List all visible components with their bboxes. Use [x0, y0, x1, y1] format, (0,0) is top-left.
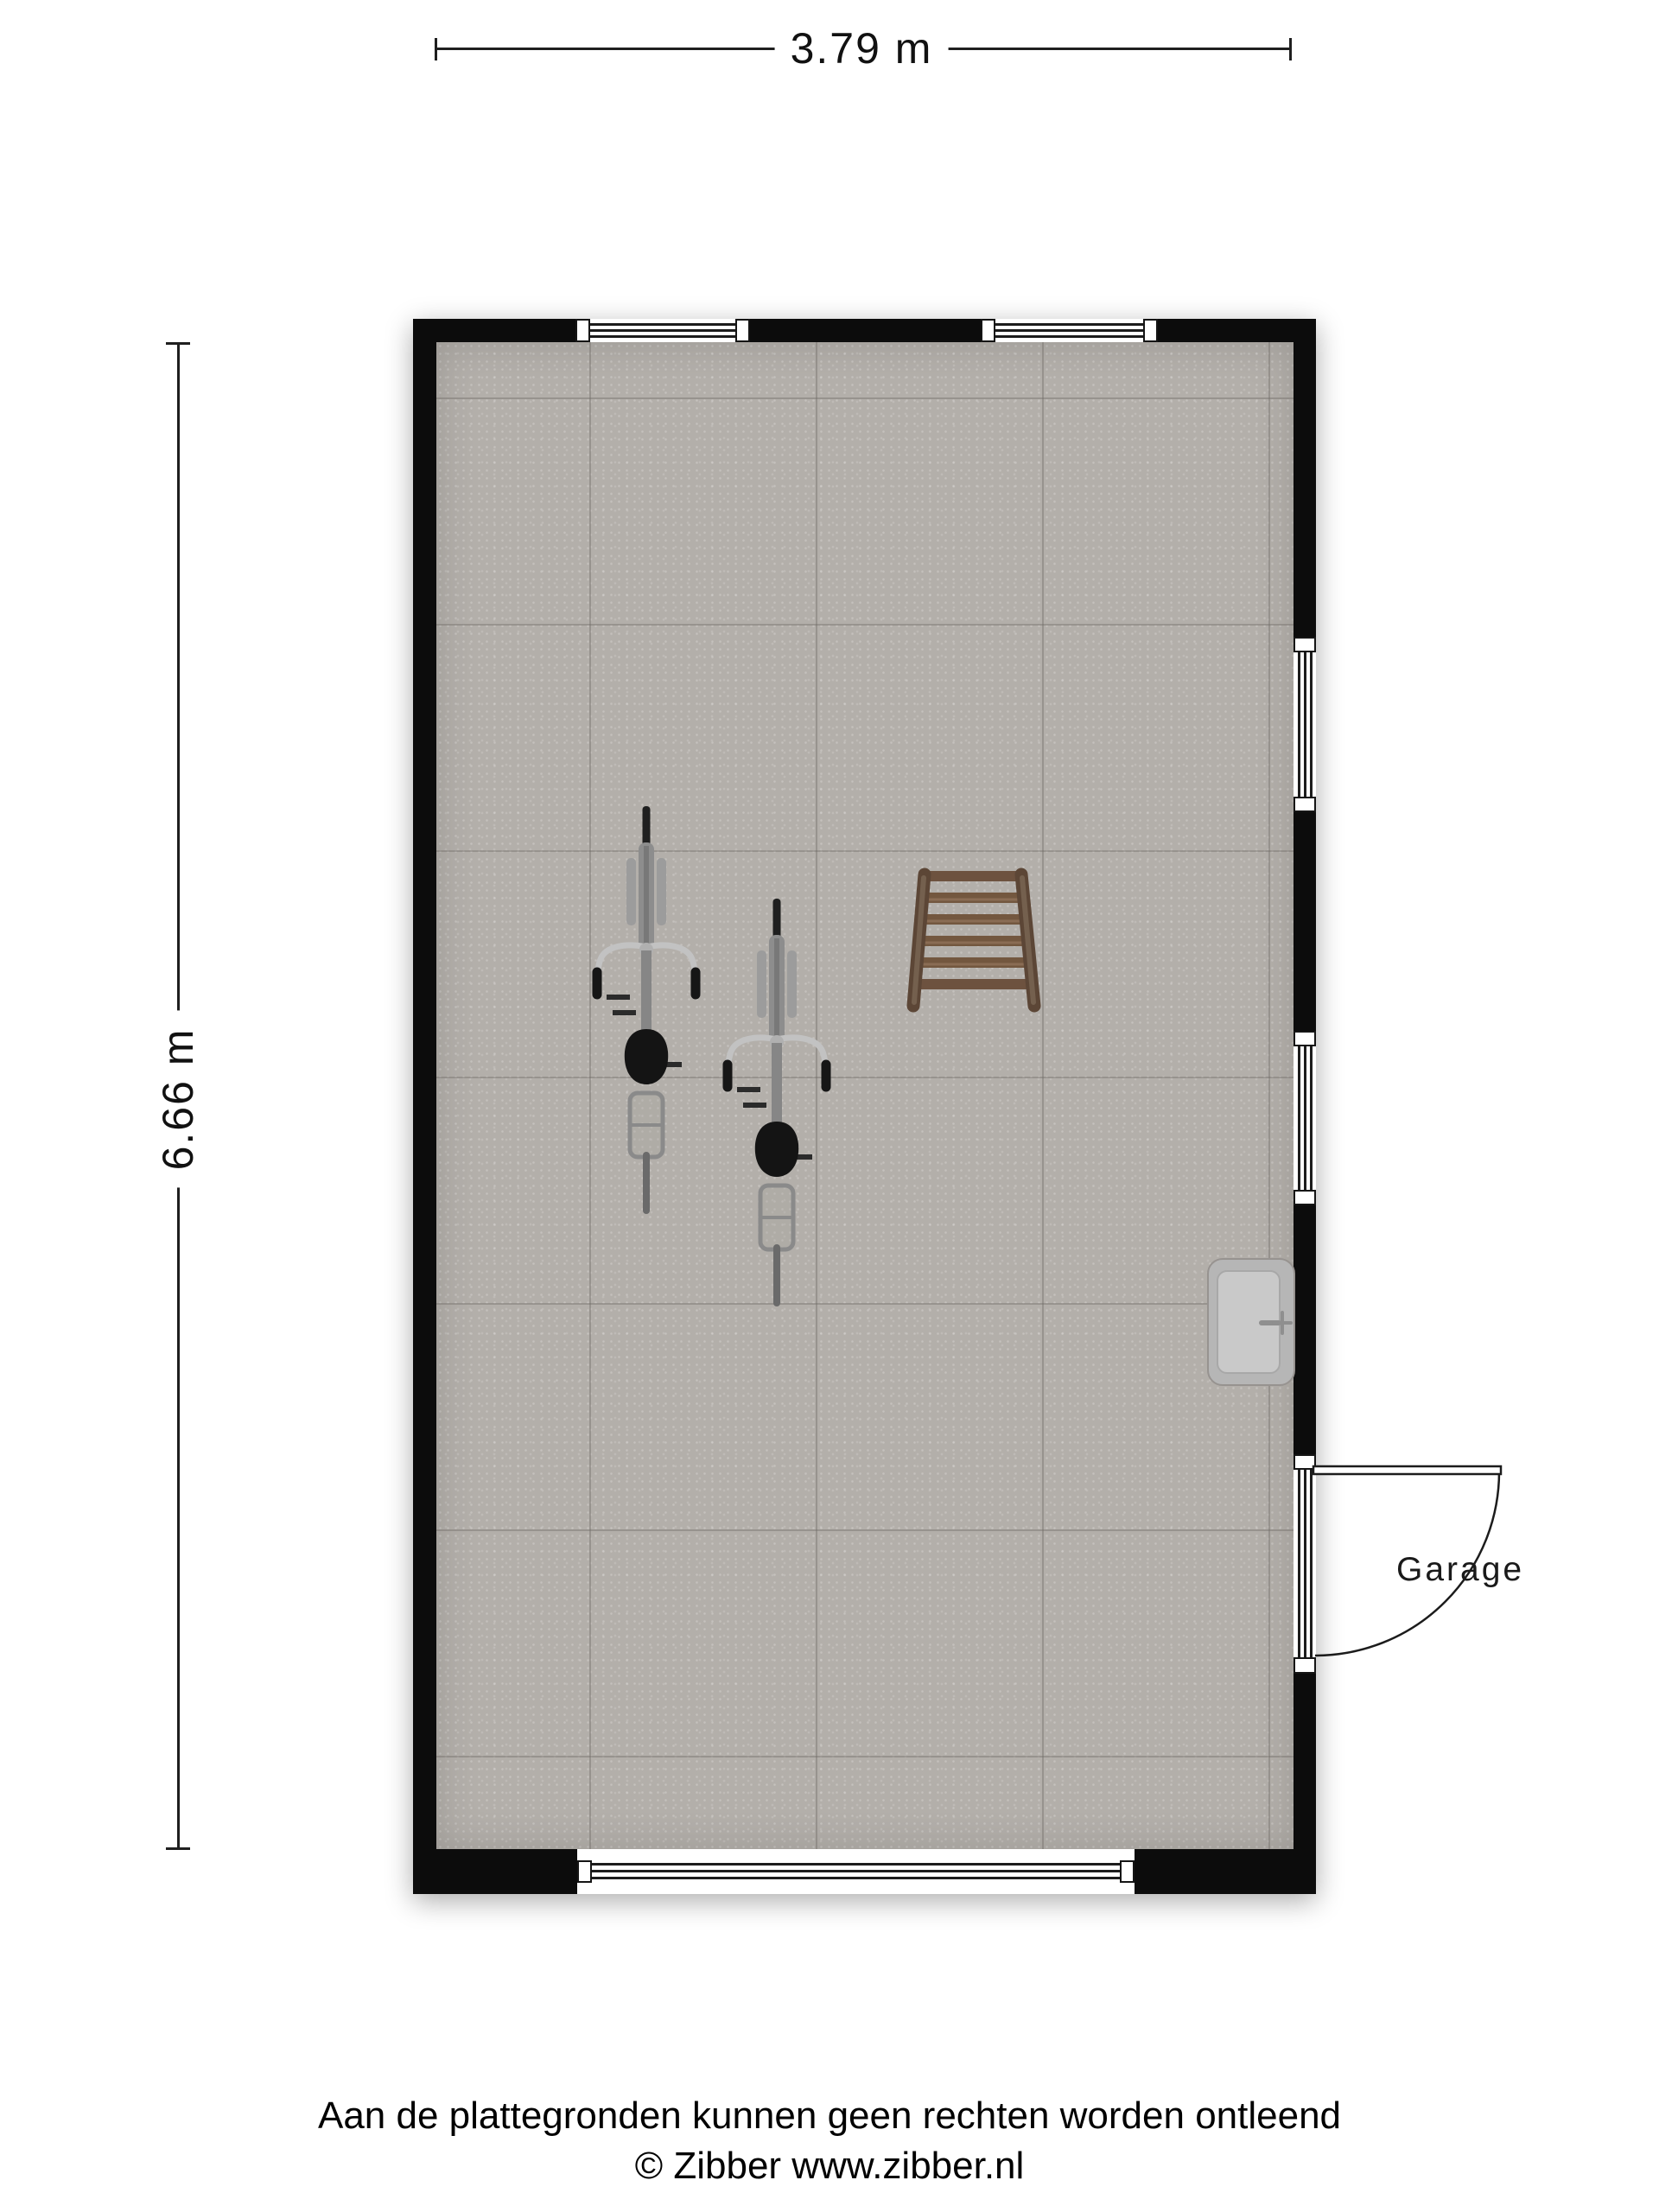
window-bottom-icon: [577, 1849, 1135, 1894]
window-cap: [577, 1860, 592, 1883]
window-pane-line: [589, 335, 736, 338]
window-pane-line: [1304, 1046, 1306, 1191]
door-jamb-line: [1298, 1469, 1300, 1659]
tile-line: [436, 1303, 1294, 1305]
dimension-width-tick-left: [435, 38, 437, 60]
door-jamb-line: [1304, 1469, 1306, 1659]
door-cap: [1294, 1657, 1316, 1674]
tile-line: [436, 850, 1294, 852]
window-cap: [735, 319, 750, 342]
tile-line: [436, 1077, 1294, 1078]
door-cap: [1294, 1454, 1316, 1470]
window-pane-line: [591, 1877, 1121, 1879]
window-cap: [981, 319, 995, 342]
window-right-1-icon: [1294, 637, 1316, 812]
window-cap: [575, 319, 590, 342]
garage-floor: [436, 342, 1294, 1849]
window-cap: [1294, 1190, 1316, 1205]
room-label: Garage: [1396, 1551, 1524, 1589]
window-cap: [1294, 637, 1316, 652]
tile-line: [436, 1529, 1294, 1531]
floorplan-page: { "dimensions": { "width": { "label": "3…: [0, 0, 1659, 2212]
window-pane-line: [995, 323, 1144, 326]
window-cap: [1120, 1860, 1135, 1883]
window-pane-line: [995, 335, 1144, 338]
tile-line: [436, 397, 1294, 399]
dimension-height-tick-bottom: [166, 1847, 190, 1850]
door-opening-icon: [1294, 1454, 1316, 1674]
footer: Aan de plattegronden kunnen geen rechten…: [0, 2091, 1659, 2191]
window-pane-line: [995, 329, 1144, 332]
tile-line: [436, 624, 1294, 626]
footer-copyright: © Zibber www.zibber.nl: [0, 2141, 1659, 2191]
window-pane-line: [591, 1863, 1121, 1866]
tile-line: [1268, 342, 1270, 1849]
dimension-height-label: 6.66 m: [153, 1011, 203, 1188]
footer-disclaimer: Aan de plattegronden kunnen geen rechten…: [0, 2091, 1659, 2141]
dimension-width-tick-right: [1289, 38, 1292, 60]
window-pane-line: [1310, 1046, 1313, 1191]
window-pane-line: [591, 1870, 1121, 1872]
dimension-height-tick-top: [166, 342, 190, 345]
window-cap: [1294, 797, 1316, 812]
wall-top: [413, 319, 1316, 342]
window-pane-line: [589, 329, 736, 332]
window-pane-line: [1298, 652, 1300, 798]
tile-line: [816, 342, 817, 1849]
tile-line: [1042, 342, 1044, 1849]
window-top-1-icon: [575, 319, 750, 342]
window-pane-line: [1310, 652, 1313, 798]
window-top-2-icon: [981, 319, 1158, 342]
wall-left: [413, 319, 436, 1894]
window-pane-line: [1304, 652, 1306, 798]
window-pane-line: [1298, 1046, 1300, 1191]
window-cap: [1294, 1031, 1316, 1046]
window-right-2-icon: [1294, 1031, 1316, 1205]
dimension-width-label: 3.79 m: [775, 23, 949, 73]
window-cap: [1143, 319, 1158, 342]
tile-line: [589, 342, 591, 1849]
garage-building: Garage: [413, 319, 1316, 1894]
door-jamb-line: [1310, 1469, 1313, 1659]
tile-line: [436, 1756, 1294, 1758]
window-pane-line: [589, 323, 736, 326]
